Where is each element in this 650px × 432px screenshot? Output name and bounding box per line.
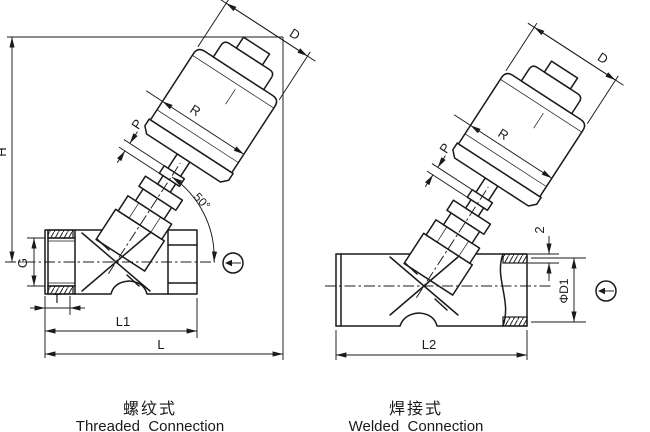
welded-caption-zh: 焊接式 xyxy=(389,400,443,418)
dim-bore: ΦD1 xyxy=(531,258,586,322)
threaded-actuator xyxy=(51,0,326,305)
weld-end-detail xyxy=(500,254,527,326)
dim-t: T xyxy=(30,291,85,358)
dim-angle: 50° xyxy=(172,177,214,262)
threaded-flow-indicator xyxy=(223,253,243,273)
dim-label-l: L xyxy=(157,337,164,352)
threaded-figure: 50° H G T L1 xyxy=(0,0,326,432)
dim-label-l2: L2 xyxy=(422,337,436,352)
welded-flow-indicator xyxy=(596,281,616,301)
dim-wall: 2 xyxy=(528,226,559,281)
threaded-caption-en: Threaded Connection xyxy=(76,418,224,432)
dim-label-l1: L1 xyxy=(116,314,130,329)
dim-label-g: G xyxy=(15,258,30,268)
dim-label-wall: 2 xyxy=(532,226,547,233)
welded-figure: 2 ΦD1 L2 焊接式 Welded Connection xyxy=(325,1,634,432)
dim-label-bore: ΦD1 xyxy=(557,278,571,303)
thread-hatch-top xyxy=(48,230,73,238)
dim-l2: L2 xyxy=(336,330,527,360)
dim-l1: L1 xyxy=(45,298,197,338)
dim-label-t: T xyxy=(53,291,61,306)
dim-label-angle: 50° xyxy=(191,190,214,213)
welded-actuator xyxy=(359,1,634,330)
valve-technical-drawing: P R D xyxy=(0,0,650,432)
technical-drawing-page: P R D xyxy=(0,0,650,432)
weld-bevel-hatch-bottom xyxy=(503,317,527,326)
dim-l: L xyxy=(45,337,283,354)
weld-bevel-hatch-top xyxy=(503,254,527,263)
dim-label-h: H xyxy=(0,147,9,156)
threaded-caption-zh: 螺纹式 xyxy=(123,400,177,418)
welded-caption-en: Welded Connection xyxy=(349,418,484,432)
